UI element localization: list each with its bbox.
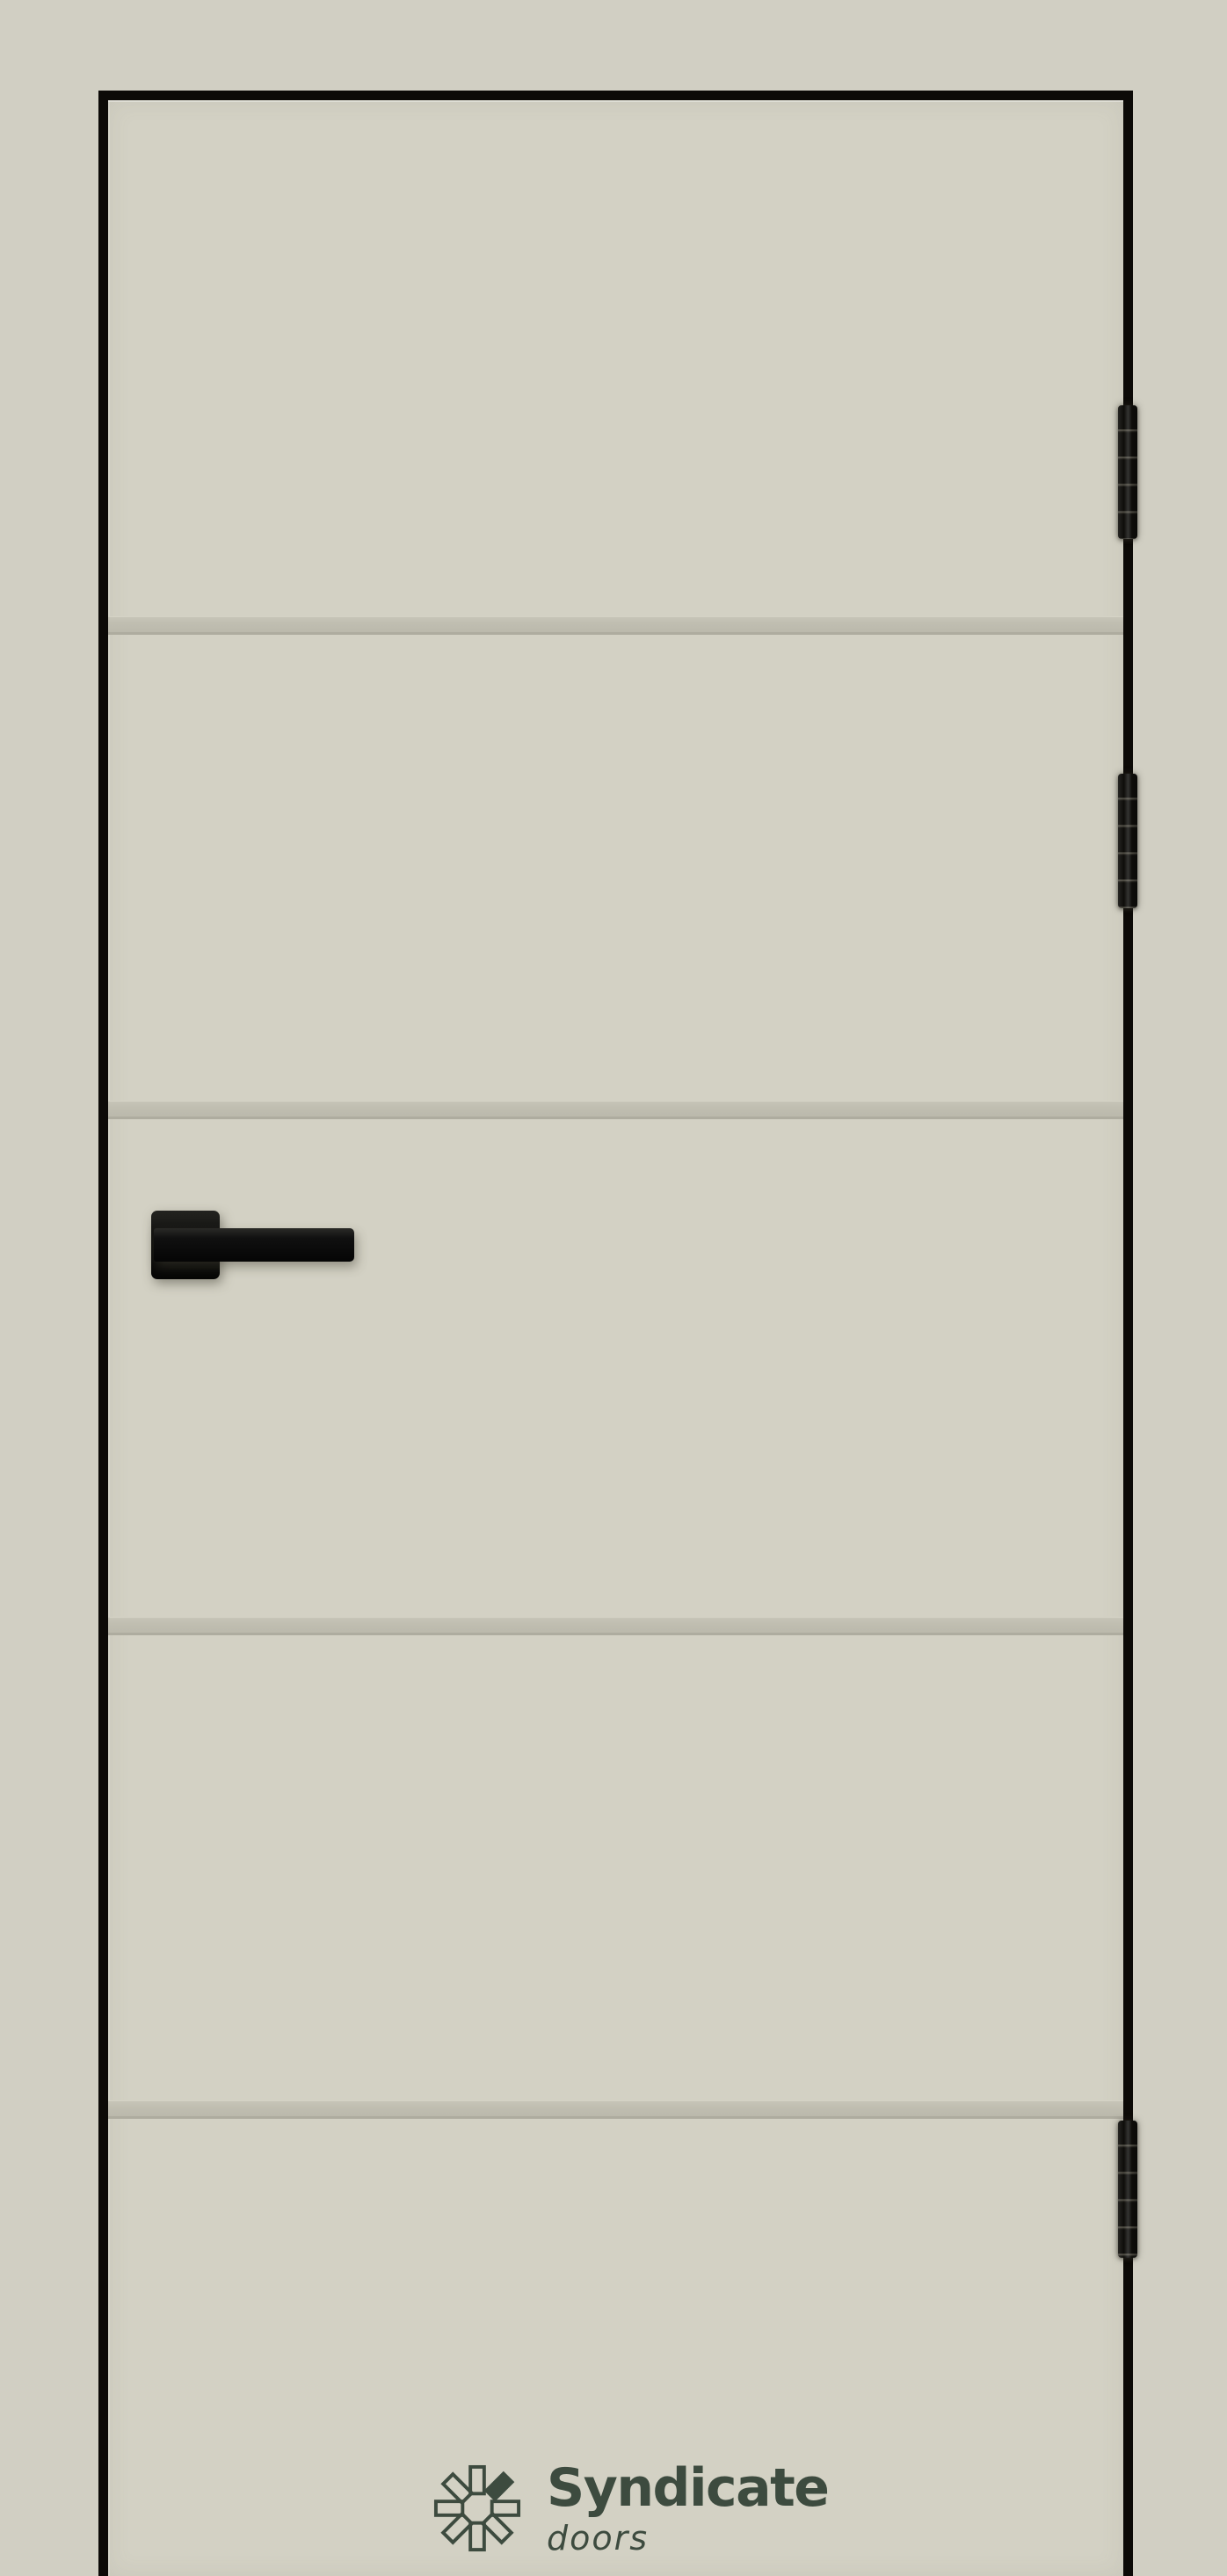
pinwheel-logo-icon [432,2463,522,2553]
hinge-bottom [1118,2121,1137,2258]
door-groove [108,2100,1123,2119]
hinge-top [1118,405,1137,539]
door-handle-lever [154,1228,354,1262]
hinge-middle [1118,774,1137,908]
brand-logo-text: Syndicate doors [547,2462,828,2555]
door-groove [108,1101,1123,1119]
product-scene: Syndicate doors [0,0,1227,2576]
door-groove [108,1617,1123,1635]
brand-tagline: doors [547,2521,828,2555]
brand-name: Syndicate [547,2462,828,2514]
door-leaf [98,91,1133,2576]
door-groove [108,616,1123,635]
brand-logo: Syndicate doors [432,2462,828,2555]
